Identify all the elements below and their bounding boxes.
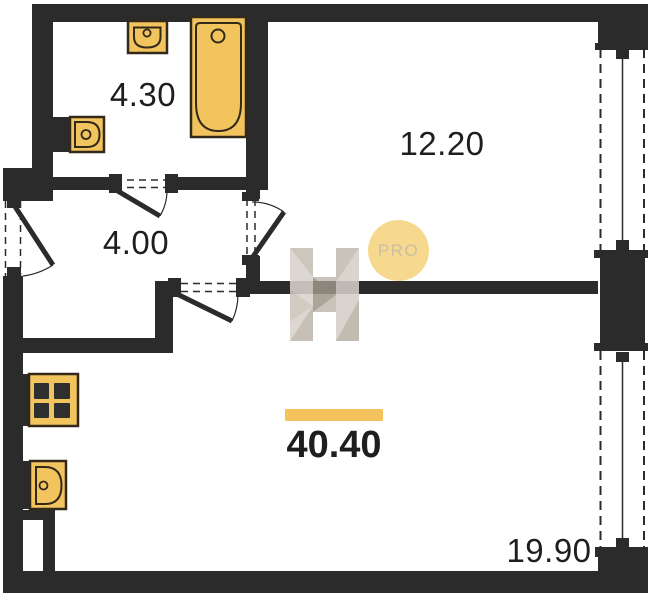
- pro-badge-label: PRO: [378, 241, 419, 261]
- stove-icon: [20, 374, 78, 426]
- door-swing-arc: [252, 202, 284, 212]
- door-swing-arc: [232, 295, 238, 321]
- kitchen-sink-icon: [20, 461, 66, 509]
- pro-badge: PRO: [368, 220, 429, 281]
- door-swing-arc: [23, 265, 53, 276]
- wall-right-mid-block: [600, 250, 645, 351]
- wall-bathroom-bottom-left: [53, 177, 115, 190]
- living-room-door: [168, 278, 250, 321]
- total-area-underline: [285, 409, 383, 421]
- entrance-door: [6, 198, 54, 277]
- area-label-living-kitchen: 19.90: [489, 530, 609, 572]
- total-area-label: 40.40: [264, 423, 404, 467]
- wall-right-top-sill: [595, 43, 648, 50]
- window-upper: [601, 49, 645, 250]
- wall-left-bathroom: [32, 4, 53, 192]
- bathroom-door: [109, 174, 178, 216]
- wall-bathroom-right: [246, 22, 268, 190]
- door-leaf: [116, 190, 160, 216]
- area-label-bathroom: 4.30: [83, 74, 203, 116]
- window-lower: [601, 351, 645, 547]
- door-leaf: [252, 212, 284, 258]
- floor-plan: 4.30 4.00 12.20 19.90 40.40 PRO: [0, 0, 650, 600]
- bedroom-door: [242, 192, 284, 265]
- area-label-bedroom: 12.20: [382, 123, 502, 165]
- door-swing-arc: [160, 190, 167, 216]
- wall-right-mid-cap-bottom: [594, 343, 648, 351]
- door-leaf: [177, 294, 232, 321]
- area-label-hallway: 4.00: [76, 222, 196, 264]
- wall-right-mid-cap-top: [594, 250, 648, 258]
- wall-bottom: [3, 571, 648, 593]
- sink-side-icon: [53, 117, 104, 152]
- wall-corner-block: [3, 168, 53, 201]
- sink-top-icon: [128, 14, 167, 53]
- wall-shaft-vertical: [43, 510, 55, 573]
- wall-top: [32, 4, 648, 22]
- wall-hallway-bottom: [3, 338, 173, 353]
- watermark-h-logo: [290, 248, 359, 341]
- wall-right-top-block: [598, 4, 648, 49]
